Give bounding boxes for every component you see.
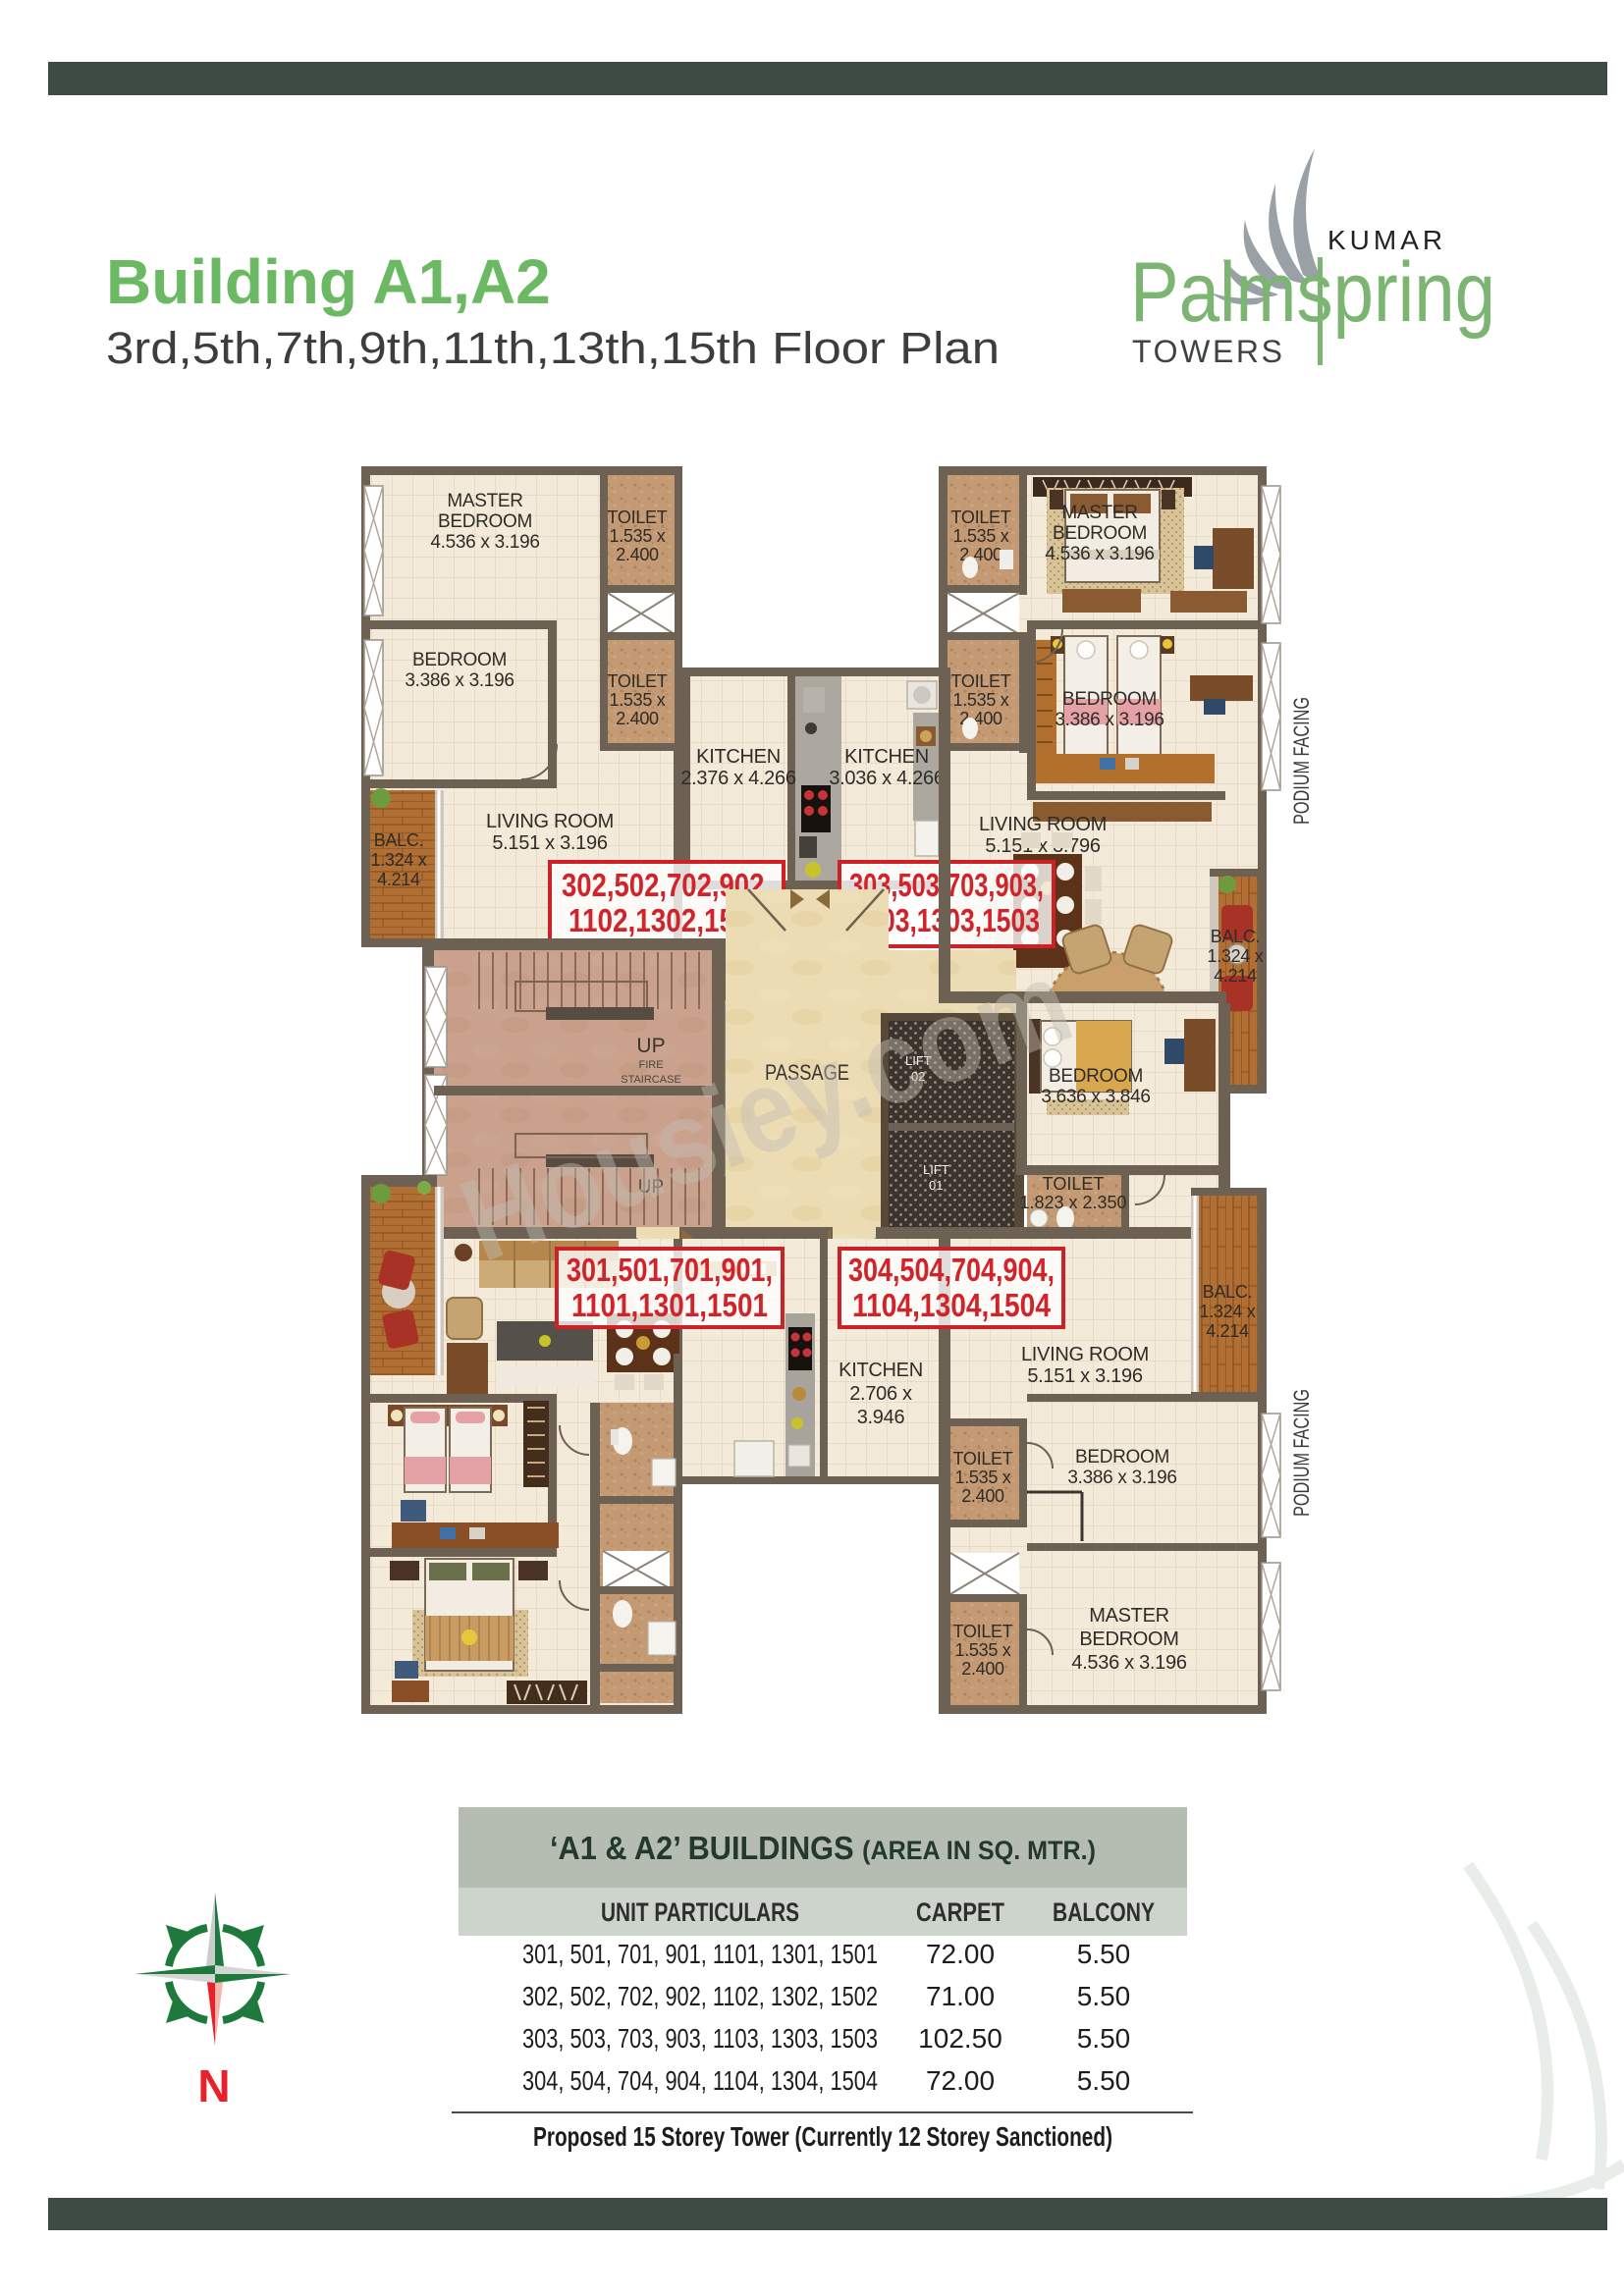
svg-text:LIFT: LIFT (923, 1162, 949, 1177)
svg-text:MASTER: MASTER (1061, 503, 1137, 523)
svg-text:2.376 x 4.266: 2.376 x 4.266 (680, 768, 795, 789)
svg-text:KITCHEN: KITCHEN (844, 746, 929, 768)
svg-text:5.50: 5.50 (1077, 2023, 1131, 2054)
svg-text:3.386 x 3.196: 3.386 x 3.196 (1055, 710, 1164, 730)
svg-text:BEDROOM: BEDROOM (438, 511, 532, 532)
svg-text:TOWERS: TOWERS (1132, 334, 1292, 369)
svg-text:TOILET: TOILET (608, 671, 668, 691)
svg-text:2.400: 2.400 (961, 1659, 1004, 1679)
svg-text:UNIT PARTICULARS: UNIT PARTICULARS (601, 1897, 799, 1927)
svg-text:MASTER: MASTER (1089, 1605, 1169, 1627)
svg-text:KITCHEN: KITCHEN (839, 1360, 923, 1381)
svg-text:TOILET: TOILET (951, 507, 1011, 527)
svg-text:1.324 x: 1.324 x (371, 850, 427, 870)
svg-text:3.636 x 3.846: 3.636 x 3.846 (1041, 1087, 1150, 1107)
svg-text:N: N (197, 2060, 230, 2111)
svg-text:2.400: 2.400 (616, 709, 659, 728)
svg-text:4.536 x 3.196: 4.536 x 3.196 (1045, 544, 1154, 564)
svg-text:5.151 x 3.796: 5.151 x 3.796 (985, 835, 1100, 857)
svg-text:LIVING ROOM: LIVING ROOM (979, 814, 1107, 835)
svg-text:301,501,701,901,: 301,501,701,901, (567, 1252, 773, 1288)
svg-text:TOILET: TOILET (1043, 1174, 1105, 1194)
svg-text:BEDROOM: BEDROOM (1075, 1447, 1169, 1468)
svg-text:1.535 x: 1.535 x (610, 526, 666, 546)
svg-text:1104,1304,1504: 1104,1304,1504 (852, 1287, 1052, 1323)
svg-text:BALC.: BALC. (1211, 927, 1261, 946)
svg-text:‘A1 & A2’ BUILDINGS (AREA IN: ‘A1 & A2’ BUILDINGS (AREA IN SQ. MTR.) (550, 1830, 1096, 1866)
svg-text:4.214: 4.214 (1214, 966, 1257, 986)
svg-text:Building A1,A2: Building A1,A2 (106, 246, 551, 317)
svg-text:PODIUM FACING: PODIUM FACING (1289, 697, 1314, 825)
svg-text:301, 501, 701, 901, 1101, 1301: 301, 501, 701, 901, 1101, 1301, 1501 (522, 1939, 878, 1969)
svg-text:5.50: 5.50 (1077, 2065, 1131, 2096)
svg-text:LIVING ROOM: LIVING ROOM (1021, 1344, 1149, 1365)
svg-text:KITCHEN: KITCHEN (696, 746, 781, 768)
svg-text:3.386 x 3.196: 3.386 x 3.196 (405, 670, 514, 691)
svg-text:5.50: 5.50 (1077, 1939, 1131, 1969)
svg-text:3.036 x 4.266: 3.036 x 4.266 (829, 768, 944, 789)
svg-text:1.535 x: 1.535 x (953, 526, 1009, 546)
svg-text:71.00: 71.00 (926, 1981, 995, 2011)
svg-text:1101,1301,1501: 1101,1301,1501 (571, 1287, 768, 1323)
svg-text:304,504,704,904,: 304,504,704,904, (848, 1252, 1055, 1288)
svg-text:102.50: 102.50 (918, 2023, 1002, 2054)
svg-text:BEDROOM: BEDROOM (1079, 1629, 1178, 1650)
svg-text:72.00: 72.00 (926, 1939, 995, 1969)
svg-text:2.400: 2.400 (616, 545, 659, 564)
svg-text:302, 502, 702, 902, 1102, 1302: 302, 502, 702, 902, 1102, 1302, 1502 (522, 1981, 878, 2011)
svg-text:72.00: 72.00 (926, 2065, 995, 2096)
svg-text:MASTER: MASTER (447, 491, 522, 511)
svg-text:1.535 x: 1.535 x (953, 690, 1009, 710)
svg-text:FIRE: FIRE (638, 1059, 663, 1071)
svg-text:1.535 x: 1.535 x (955, 1640, 1011, 1660)
svg-text:Palmspring: Palmspring (1130, 245, 1495, 340)
svg-text:BEDROOM: BEDROOM (1062, 689, 1157, 710)
svg-text:BALCONY: BALCONY (1053, 1897, 1155, 1927)
svg-text:5.151 x 3.196: 5.151 x 3.196 (1027, 1365, 1142, 1387)
svg-text:2.706 x: 2.706 x (849, 1383, 912, 1405)
svg-text:5.151 x 3.196: 5.151 x 3.196 (492, 832, 607, 854)
svg-text:5.50: 5.50 (1077, 1981, 1131, 2011)
svg-text:BEDROOM: BEDROOM (1049, 1066, 1143, 1087)
svg-text:BALC.: BALC. (374, 830, 424, 850)
svg-text:TOILET: TOILET (608, 507, 668, 527)
svg-text:1.535 x: 1.535 x (955, 1468, 1011, 1487)
svg-text:3.386 x 3.196: 3.386 x 3.196 (1067, 1468, 1176, 1488)
svg-text:1.324 x: 1.324 x (1200, 1302, 1256, 1321)
svg-text:CARPET: CARPET (916, 1897, 1004, 1927)
svg-text:4.214: 4.214 (1206, 1321, 1249, 1341)
svg-text:304, 504, 704, 904, 1104, 1304: 304, 504, 704, 904, 1104, 1304, 1504 (522, 2065, 878, 2096)
svg-text:Proposed 15 Storey Tower (Curr: Proposed 15 Storey Tower (Currently 12 S… (533, 2121, 1112, 2152)
svg-text:303, 503, 703, 903, 1103, 1303: 303, 503, 703, 903, 1103, 1303, 1503 (522, 2023, 878, 2054)
svg-text:LIVING ROOM: LIVING ROOM (486, 811, 614, 832)
svg-text:PODIUM FACING: PODIUM FACING (1289, 1389, 1314, 1517)
svg-text:3.946: 3.946 (857, 1407, 905, 1428)
svg-text:UP: UP (636, 1035, 665, 1057)
svg-text:4.214: 4.214 (377, 870, 420, 889)
svg-text:1.535 x: 1.535 x (610, 690, 666, 710)
svg-text:TOILET: TOILET (951, 671, 1011, 691)
svg-text:BALC.: BALC. (1203, 1282, 1253, 1302)
svg-text:2.400: 2.400 (961, 1486, 1004, 1506)
svg-text:4.536 x 3.196: 4.536 x 3.196 (430, 532, 539, 553)
svg-text:01: 01 (929, 1178, 943, 1193)
svg-text:3rd,5th,7th,9th,11th,13th,15th: 3rd,5th,7th,9th,11th,13th,15th Floor Pla… (106, 323, 1000, 373)
svg-text:BEDROOM: BEDROOM (412, 650, 507, 670)
svg-text:1.324 x: 1.324 x (1208, 946, 1264, 966)
svg-text:TOILET: TOILET (953, 1622, 1013, 1641)
svg-text:4.536 x 3.196: 4.536 x 3.196 (1071, 1652, 1186, 1674)
svg-text:TOILET: TOILET (953, 1449, 1013, 1468)
svg-text:BEDROOM: BEDROOM (1053, 523, 1147, 544)
